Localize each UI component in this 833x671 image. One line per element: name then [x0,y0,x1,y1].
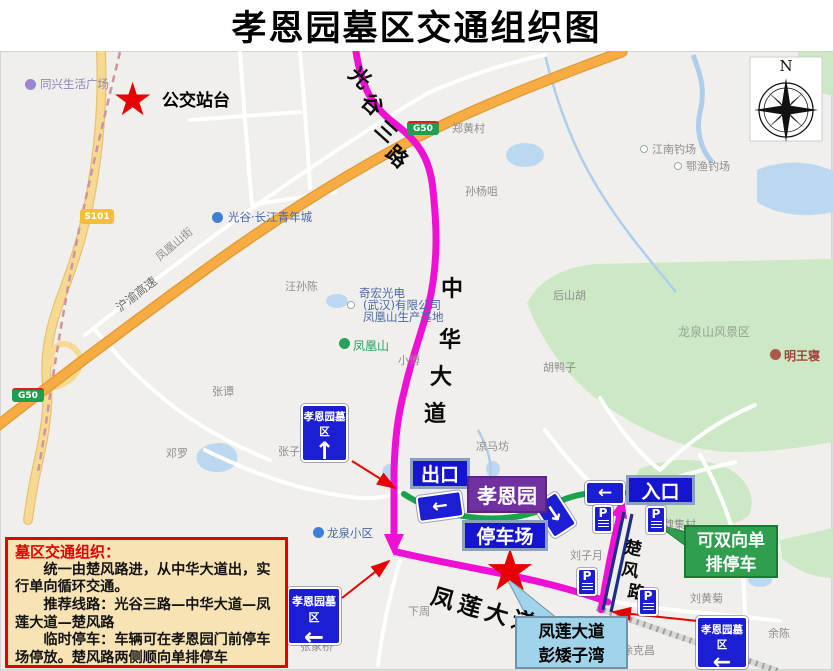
pengaiziwan-callout: 凤莲大道 彭矮子湾 [515,616,628,669]
info-box-paragraph: 临时停车：车辆可在孝恩园门前停车场停放。楚风路两侧顺向单排停车 [15,632,278,667]
two-way-parking-callout: 可双向单 排停车 [684,525,778,578]
poi-tongxing: 同兴生活广场 [40,76,109,92]
parking-sign-smalltext [643,603,654,611]
parking-p-letter: P [579,570,595,583]
poi-longquan-xiaoqu: 龙泉小区 [327,525,373,541]
s101-badge: S101 [80,209,114,224]
poi-huyazi: 胡鸭子 [543,359,576,375]
guide-sign-text: 孝恩园墓区 [289,593,339,625]
parking-p-letter: P [648,508,664,521]
poi-zhangzi: 张子 [278,443,300,459]
title-band: 孝恩园墓区交通组织图 [0,0,833,51]
info-box-paragraph: 统一由楚风路进，从中华大道出，实行单向循环交通。 [15,562,278,597]
parking-p-letter: P [640,590,656,603]
arrow-sign-left: ← [585,481,625,505]
poi-dengluo: 邓罗 [166,445,188,461]
poi-guanggu-youth: 光谷·长江青年城 [228,209,312,225]
route-label-zhonghua: 华 [439,322,461,354]
guide-sign-text: 孝恩园墓区 [698,622,746,652]
residence-icon [313,527,324,538]
poi-wangsunchen: 汪孙陈 [285,278,318,294]
g50-badge: G50 [12,388,44,402]
left-arrow-icon: ← [698,652,746,671]
poi-qihong-3: 凤凰山生产基地 [363,309,444,325]
compass-north-label: N [750,57,822,77]
callout-line: 可双向单 [686,530,776,554]
mall-icon [25,79,36,90]
parking-sign-smalltext [582,583,593,591]
poi-longquan-scenic: 龙泉山风景区 [678,323,750,340]
poi-liangmafang: 凉马坊 [476,438,509,454]
road-label-huyu-expressway: 沪渝高速 [112,272,160,315]
guide-sign-text: 孝恩园墓区 [303,409,346,439]
poi-yuchen: 余陈 [768,625,790,641]
poi-liuziyue: 刘子月 [570,547,603,563]
xiaoenyuan-label-box: 孝恩园 [467,476,547,513]
poi-jiangnan-fishing: 江南钓场 [652,141,696,157]
fishing-icon [640,145,648,153]
mountain-icon [339,338,350,349]
parking-sign: P [638,588,658,616]
poi-houshanhu: 后山胡 [553,287,586,303]
g50-badge: G50 [407,121,439,135]
info-box-paragraph: 推荐线路：光谷三路—中华大道—凤莲大道—楚风路 [15,597,278,632]
callout-line: 排停车 [686,554,776,578]
city-icon [212,212,223,223]
poi-liuhuangju: 刘黄菊 [690,590,723,606]
left-arrow-icon: ← [418,492,463,521]
route-label-zhonghua: 大 [430,359,452,391]
route-label-zhonghua: 道 [424,396,446,428]
callout-line: 彭矮子湾 [517,644,626,668]
factory-icon [347,301,355,309]
page-title: 孝恩园墓区交通组织图 [231,0,601,51]
bus-stop-star-icon: ★ [112,76,153,122]
tomb-icon [770,349,781,360]
route-label-zhonghua: 中 [441,271,463,303]
parking-p-letter: P [595,507,611,520]
poi-eyu-fishing: 鄂渔钓场 [686,158,730,174]
poi-zhenghuangcun: 郑黄村 [452,120,485,136]
parking-sign-smalltext [598,520,609,528]
guide-sign-cemetery-left-east: 孝恩园墓区 ← [696,616,748,669]
left-arrow-icon: ← [289,625,339,649]
parking-sign: P [593,505,613,533]
parking-lot-label-box: 停车场 [462,520,548,551]
poi-sunyangju: 孙杨咀 [465,183,498,199]
poi-fenghuangshan: 凤凰山 [353,337,389,354]
arrow-sign-left: ← [415,490,464,523]
fishing-icon [674,162,682,170]
parking-sign: P [646,506,666,534]
poi-xiazhou: 下周 [408,603,430,619]
guide-sign-cemetery-left-west: 孝恩园墓区 ← [287,587,341,645]
callout-line: 凤莲大道 [517,620,626,644]
traffic-map-page: 同兴生活广场 光谷·长江青年城 郑黄村 孙杨咀 江南钓场 鄂渔钓场 汪孙陈 奇宏… [0,0,833,671]
traffic-info-box: 墓区交通组织： 统一由楚风路进，从中华大道出，实行单向循环交通。 推荐线路：光谷… [5,537,288,668]
poi-xiaofu: 小傅 [398,352,420,368]
entrance-label-box: 入口 [626,475,695,505]
poi-mingwangqin: 明王寝 [784,347,820,364]
exit-label-box: 出口 [410,458,470,489]
up-arrow-icon: ↑ [303,439,346,463]
info-box-heading: 墓区交通组织： [15,543,278,562]
road-label-fenghuangshan-street: 凤凰山街 [152,224,196,265]
parking-sign: P [577,568,597,596]
bus-stop-label: 公交站台 [162,86,230,111]
parking-sign-smalltext [651,521,662,529]
left-arrow-icon: ← [587,483,623,503]
guide-sign-cemetery-up: 孝恩园墓区 ↑ [301,404,348,462]
poi-zhangtan: 张谭 [212,383,234,399]
